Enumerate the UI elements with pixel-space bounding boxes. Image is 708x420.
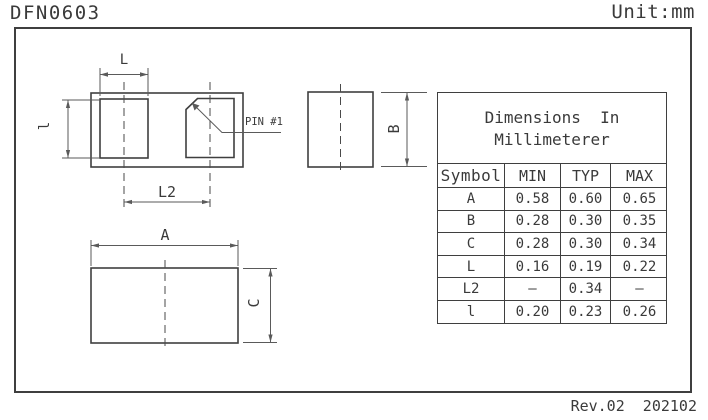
arrowhead — [230, 243, 238, 247]
arrowhead — [202, 200, 210, 204]
arrowhead — [66, 100, 70, 108]
datasheet-page: DFN0603 Unit:mm Rev.02 202102 — [0, 0, 708, 420]
top-view-arrowheads — [66, 72, 210, 204]
dim-label-C: C — [242, 291, 266, 315]
cell-min: 0.28 — [504, 211, 560, 233]
table-title-line1: Dimensions In — [485, 108, 620, 127]
top-view — [91, 93, 243, 167]
cell-max: – — [610, 278, 668, 300]
table-title: Dimensions In Millimeterer — [438, 93, 666, 163]
dimensions-table: Dimensions In Millimeterer Symbol MIN TY… — [437, 92, 667, 324]
dim-label-L: L — [112, 51, 136, 69]
cell-typ: 0.34 — [560, 278, 610, 300]
dim-label-B: B — [382, 117, 406, 141]
arrowhead — [66, 150, 70, 158]
column-header-max: MAX — [610, 164, 668, 187]
table-header-row: Symbol MIN TYP MAX — [438, 163, 666, 187]
cell-typ: 0.23 — [560, 301, 610, 323]
cell-max: 0.26 — [610, 301, 668, 323]
cell-min: – — [504, 278, 560, 300]
arrowhead — [405, 93, 409, 101]
cell-symbol: A — [438, 188, 504, 210]
dim-label-L2: L2 — [150, 183, 184, 201]
dim-label-A: A — [153, 226, 177, 244]
top-view-dimensions — [62, 68, 281, 202]
cell-symbol: B — [438, 211, 504, 233]
package-outline — [91, 93, 243, 167]
table-row: C 0.28 0.30 0.34 — [438, 232, 666, 255]
arrowhead — [268, 335, 272, 343]
cell-max: 0.22 — [610, 256, 668, 278]
cell-max: 0.65 — [610, 188, 668, 210]
table-row: l 0.20 0.23 0.26 — [438, 300, 666, 323]
column-header-min: MIN — [504, 164, 560, 187]
table-title-line2: Millimeterer — [494, 130, 610, 149]
column-header-symbol: Symbol — [438, 164, 504, 187]
column-header-typ: TYP — [560, 164, 610, 187]
arrowhead — [91, 243, 99, 247]
table-row: A 0.58 0.60 0.65 — [438, 187, 666, 210]
arrowhead — [100, 72, 108, 76]
cell-min: 0.58 — [504, 188, 560, 210]
cell-typ: 0.30 — [560, 233, 610, 255]
arrowhead — [140, 72, 148, 76]
cell-min: 0.16 — [504, 256, 560, 278]
arrowhead — [268, 269, 272, 277]
cell-symbol: C — [438, 233, 504, 255]
cell-typ: 0.30 — [560, 211, 610, 233]
cell-min: 0.20 — [504, 301, 560, 323]
cell-max: 0.34 — [610, 233, 668, 255]
table-row: B 0.28 0.30 0.35 — [438, 210, 666, 233]
cell-typ: 0.60 — [560, 188, 610, 210]
table-row: L2 – 0.34 – — [438, 277, 666, 300]
cell-min: 0.28 — [504, 233, 560, 255]
dim-label-l: l — [33, 114, 57, 138]
cell-symbol: l — [438, 301, 504, 323]
table-row: L 0.16 0.19 0.22 — [438, 255, 666, 278]
cell-symbol: L2 — [438, 278, 504, 300]
cell-symbol: L — [438, 256, 504, 278]
pin1-label: PIN #1 — [245, 116, 283, 128]
arrowhead — [124, 200, 132, 204]
arrowhead — [405, 159, 409, 167]
cell-max: 0.35 — [610, 211, 668, 233]
cell-typ: 0.19 — [560, 256, 610, 278]
